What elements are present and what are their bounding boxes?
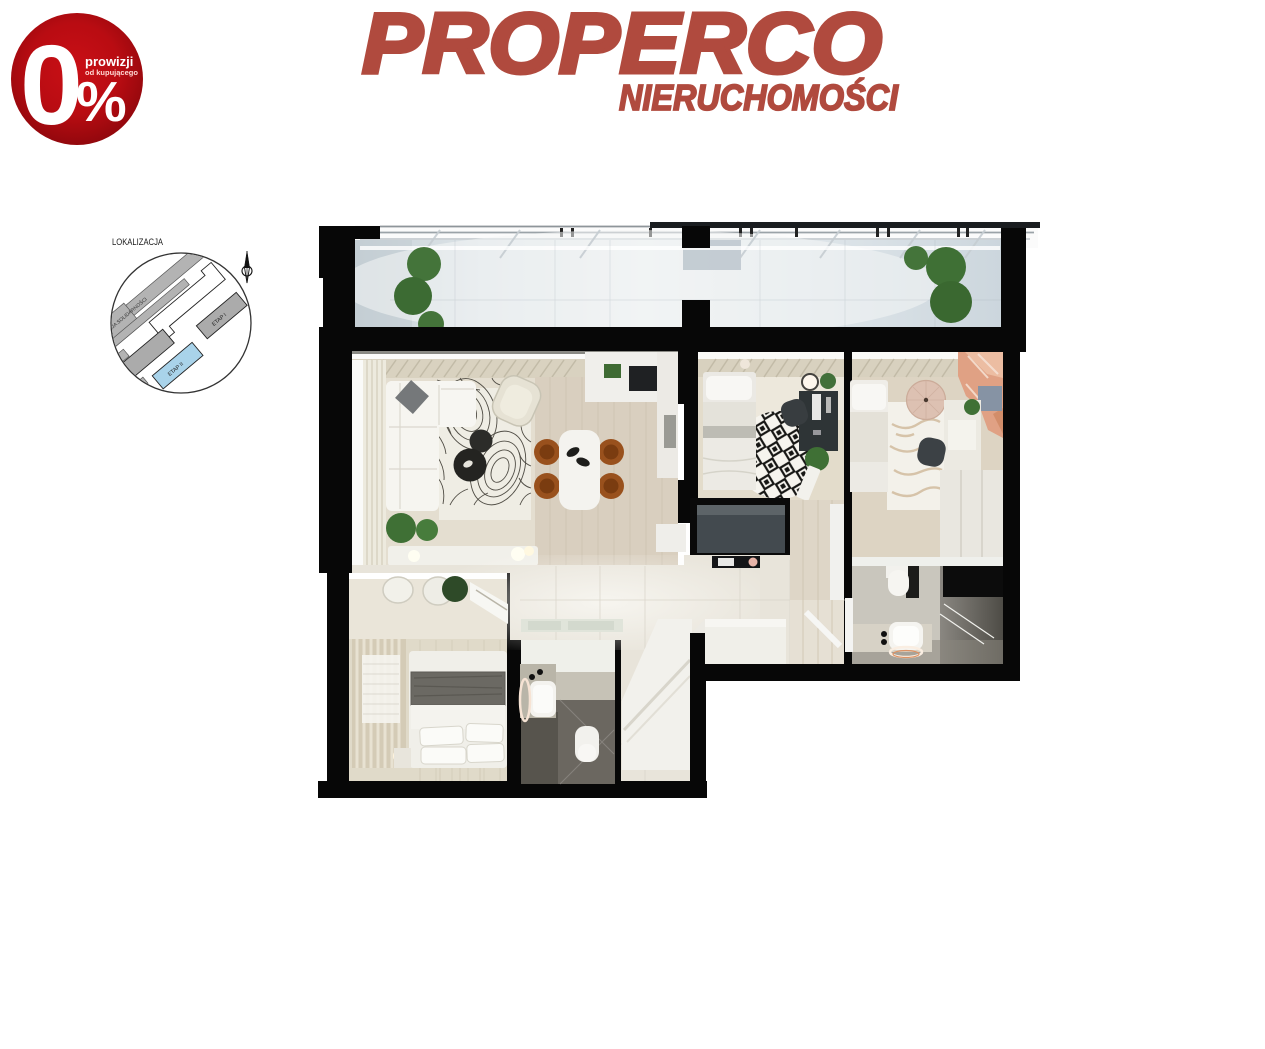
svg-text:prowizji: prowizji	[85, 54, 133, 69]
svg-text:0: 0	[20, 22, 83, 148]
svg-text:%: %	[76, 70, 127, 134]
svg-text:od kupującego: od kupującego	[85, 68, 138, 77]
svg-text:NIERUCHOMOŚCI: NIERUCHOMOŚCI	[619, 77, 899, 118]
svg-text:LOKALIZACJA: LOKALIZACJA	[112, 237, 164, 248]
